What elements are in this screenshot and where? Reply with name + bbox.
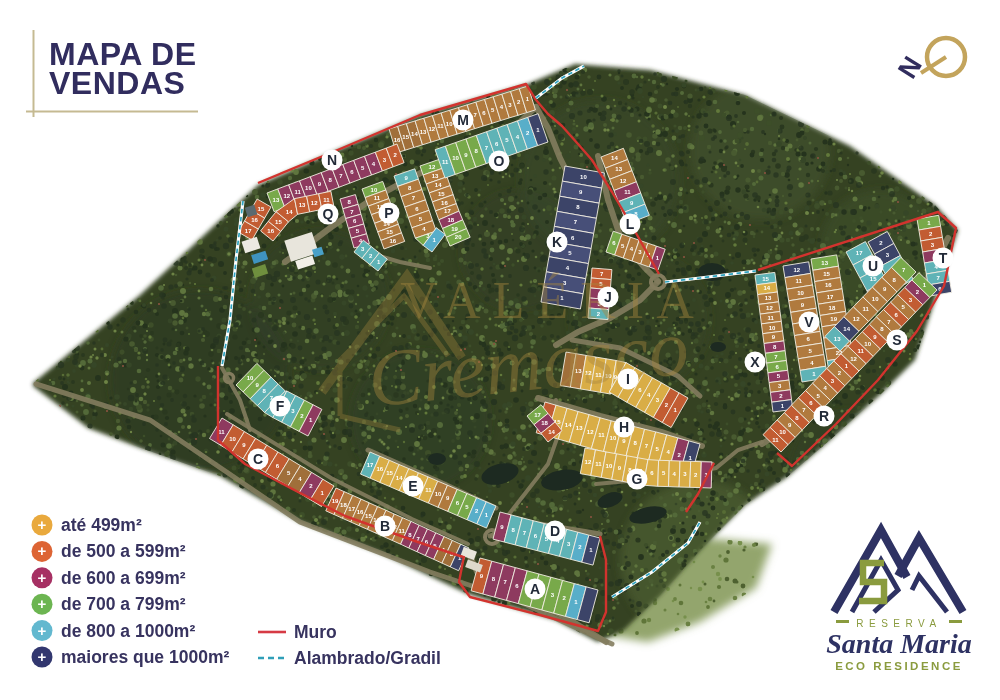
svg-text:10: 10 (606, 463, 613, 469)
svg-text:V: V (804, 314, 814, 330)
svg-text:12: 12 (587, 429, 594, 435)
svg-text:10: 10 (864, 341, 871, 347)
svg-text:10: 10 (797, 290, 804, 296)
svg-text:16: 16 (376, 466, 383, 472)
svg-text:15: 15 (438, 191, 445, 197)
svg-text:L: L (626, 216, 635, 232)
svg-text:P: P (384, 205, 393, 221)
svg-text:ECO RESIDENCE: ECO RESIDENCE (835, 660, 963, 672)
svg-text:+: + (38, 595, 47, 612)
svg-text:10: 10 (872, 296, 879, 302)
svg-text:de 500 a 599m²: de 500 a 599m² (61, 541, 186, 561)
svg-text:14: 14 (565, 422, 572, 428)
svg-text:18: 18 (340, 502, 347, 508)
svg-text:17: 17 (245, 228, 252, 234)
svg-text:10: 10 (446, 121, 453, 127)
svg-text:13: 13 (273, 197, 280, 203)
svg-text:Q: Q (323, 206, 334, 222)
svg-text:16: 16 (267, 228, 274, 234)
svg-text:12: 12 (793, 267, 800, 273)
svg-text:11: 11 (294, 189, 301, 195)
svg-text:10: 10 (580, 174, 587, 180)
svg-text:17: 17 (827, 294, 834, 300)
svg-text:Alambrado/Gradil: Alambrado/Gradil (294, 648, 441, 668)
svg-text:11: 11 (425, 487, 432, 493)
svg-text:F: F (276, 398, 285, 414)
svg-text:18: 18 (829, 305, 836, 311)
svg-text:10: 10 (371, 187, 378, 193)
svg-text:18: 18 (447, 217, 454, 223)
svg-text:I: I (626, 371, 630, 387)
svg-text:13: 13 (821, 260, 828, 266)
svg-text:maiores que 1000m²: maiores que 1000m² (61, 647, 229, 667)
svg-text:11: 11 (768, 315, 775, 321)
svg-text:de 700 a 799m²: de 700 a 799m² (61, 594, 186, 614)
svg-text:15: 15 (275, 219, 282, 225)
svg-text:10: 10 (435, 491, 442, 497)
svg-text:12: 12 (283, 193, 290, 199)
svg-text:Muro: Muro (294, 622, 337, 642)
svg-text:11: 11 (863, 306, 870, 312)
svg-text:11: 11 (857, 348, 864, 354)
svg-text:U: U (868, 258, 878, 274)
svg-text:10: 10 (769, 325, 776, 331)
svg-text:17: 17 (534, 412, 541, 418)
svg-text:G: G (632, 471, 643, 487)
svg-text:19: 19 (332, 498, 339, 504)
svg-text:13: 13 (834, 336, 841, 342)
svg-text:+: + (38, 542, 47, 559)
svg-text:19: 19 (830, 316, 837, 322)
svg-text:11: 11 (398, 528, 405, 534)
svg-text:12: 12 (850, 356, 857, 362)
svg-text:J: J (604, 289, 612, 305)
svg-text:15: 15 (870, 276, 877, 282)
svg-text:16: 16 (825, 282, 832, 288)
svg-text:10: 10 (247, 375, 254, 381)
svg-text:13: 13 (765, 295, 772, 301)
svg-text:17: 17 (367, 462, 374, 468)
svg-text:16: 16 (441, 200, 448, 206)
svg-text:C: C (253, 451, 263, 467)
svg-text:VENDAS: VENDAS (49, 65, 185, 101)
svg-text:11: 11 (772, 437, 779, 443)
svg-text:16: 16 (357, 509, 364, 515)
svg-text:15: 15 (402, 134, 409, 140)
svg-text:K: K (552, 234, 562, 250)
svg-text:14: 14 (843, 326, 850, 332)
svg-text:15: 15 (258, 206, 265, 212)
svg-text:14: 14 (611, 155, 618, 161)
svg-text:até 499m²: até 499m² (61, 515, 142, 535)
svg-text:12: 12 (766, 305, 773, 311)
svg-text:12: 12 (620, 178, 627, 184)
svg-text:D: D (550, 523, 560, 539)
svg-text:de 600 a 699m²: de 600 a 699m² (61, 568, 186, 588)
svg-text:B: B (380, 518, 390, 534)
svg-text:11: 11 (374, 195, 381, 201)
svg-text:A: A (530, 581, 540, 597)
svg-text:17: 17 (444, 208, 451, 214)
svg-text:S: S (892, 332, 901, 348)
svg-text:10: 10 (779, 429, 786, 435)
svg-text:12: 12 (429, 164, 436, 170)
svg-text:14: 14 (396, 475, 403, 481)
svg-text:R: R (819, 408, 829, 424)
svg-text:10: 10 (452, 155, 459, 161)
svg-text:M: M (457, 112, 469, 128)
svg-text:15: 15 (365, 513, 372, 519)
svg-text:+: + (38, 648, 47, 665)
svg-text:20: 20 (455, 234, 462, 240)
svg-text:11: 11 (437, 123, 444, 129)
svg-text:15: 15 (386, 470, 393, 476)
svg-text:15: 15 (386, 229, 393, 235)
svg-text:17: 17 (856, 250, 863, 256)
svg-text:10: 10 (229, 436, 236, 442)
svg-text:11: 11 (796, 278, 803, 284)
svg-text:14: 14 (548, 429, 555, 435)
svg-text:11: 11 (624, 189, 631, 195)
svg-text:10: 10 (305, 185, 312, 191)
svg-text:16: 16 (251, 217, 258, 223)
svg-text:19: 19 (451, 226, 458, 232)
svg-text:13: 13 (299, 202, 306, 208)
svg-text:14: 14 (411, 131, 418, 137)
svg-text:X: X (750, 354, 760, 370)
svg-text:12: 12 (311, 200, 318, 206)
svg-text:de 800 a 1000m²: de 800 a 1000m² (61, 621, 195, 641)
svg-text:+: + (38, 569, 47, 586)
svg-text:13: 13 (615, 166, 622, 172)
svg-text:E: E (408, 478, 417, 494)
svg-text:11: 11 (218, 429, 225, 435)
svg-text:+: + (38, 622, 47, 639)
svg-text:10: 10 (610, 435, 617, 441)
svg-text:+: + (38, 516, 47, 533)
svg-text:14: 14 (435, 182, 442, 188)
svg-text:11: 11 (595, 461, 602, 467)
svg-text:14: 14 (286, 209, 293, 215)
svg-text:H: H (619, 419, 629, 435)
svg-text:12: 12 (428, 126, 435, 132)
svg-text:15: 15 (823, 271, 830, 277)
svg-text:17: 17 (348, 506, 355, 512)
svg-text:11: 11 (442, 159, 449, 165)
svg-text:12: 12 (853, 316, 860, 322)
svg-text:O: O (494, 153, 505, 169)
svg-text:12: 12 (585, 459, 592, 465)
svg-text:13: 13 (576, 425, 583, 431)
svg-text:15: 15 (762, 276, 769, 282)
svg-text:16: 16 (389, 238, 396, 244)
svg-text:T: T (939, 250, 948, 266)
svg-text:N: N (327, 152, 337, 168)
svg-text:16: 16 (394, 137, 401, 143)
svg-text:18: 18 (541, 420, 548, 426)
svg-text:11: 11 (323, 197, 330, 203)
svg-text:Santa Maria: Santa Maria (826, 628, 972, 659)
svg-text:13: 13 (432, 173, 439, 179)
svg-text:13: 13 (420, 129, 427, 135)
svg-text:11: 11 (598, 432, 605, 438)
svg-text:14: 14 (763, 285, 770, 291)
